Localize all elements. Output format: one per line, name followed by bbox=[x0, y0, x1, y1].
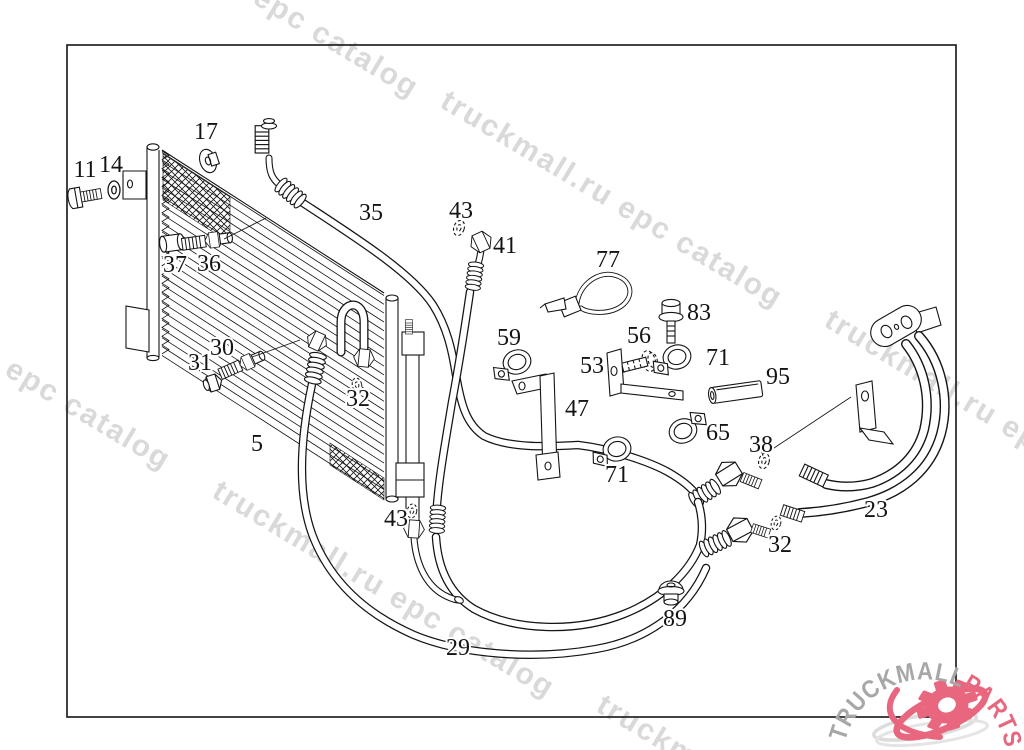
washer-14 bbox=[108, 181, 120, 199]
part-label-17: 17 bbox=[194, 119, 218, 145]
cable-tie-77 bbox=[540, 274, 630, 317]
part-label-77: 77 bbox=[596, 247, 620, 273]
radiator-bracket-lower bbox=[126, 306, 149, 352]
pipe-bracket bbox=[856, 381, 893, 444]
fitting-36 bbox=[181, 230, 233, 252]
receiver-bar bbox=[386, 295, 424, 526]
part-label-89: 89 bbox=[663, 606, 687, 632]
bolt-11 bbox=[67, 184, 103, 209]
bolt-83 bbox=[659, 299, 683, 343]
clamp-65 bbox=[665, 408, 712, 447]
part-label-36: 36 bbox=[197, 251, 221, 277]
part-label-23: 23 bbox=[864, 497, 888, 523]
part-label-5: 5 bbox=[251, 431, 263, 457]
nut-17 bbox=[197, 146, 222, 174]
part-label-71: 71 bbox=[605, 462, 629, 488]
radiator-crosshatch-bottom bbox=[330, 443, 384, 500]
pipe-flange bbox=[866, 300, 927, 351]
radiator-crosshatch-top bbox=[163, 154, 230, 243]
part-label-47: 47 bbox=[565, 396, 589, 422]
bracket-47 bbox=[512, 373, 560, 480]
part-label-43: 43 bbox=[449, 198, 473, 224]
part-label-35: 35 bbox=[359, 200, 383, 226]
pipe-assembly-23 bbox=[780, 300, 944, 522]
part-label-31: 31 bbox=[188, 350, 212, 376]
truckmall-parts-logo: TRUCKMALLPARTS bbox=[824, 657, 1024, 750]
sleeve-95 bbox=[708, 381, 763, 404]
part-label-71: 71 bbox=[706, 345, 730, 371]
part-label-83: 83 bbox=[687, 300, 711, 326]
part-label-59: 59 bbox=[497, 325, 521, 351]
part-label-30: 30 bbox=[210, 335, 234, 361]
part-label-56: 56 bbox=[627, 323, 651, 349]
part-label-53: 53 bbox=[580, 353, 604, 379]
transfer-pipe bbox=[341, 305, 375, 393]
part-label-32: 32 bbox=[768, 532, 792, 558]
parts-diagram: 1114173736354341778356537195594765383031… bbox=[0, 0, 1024, 750]
fitting-37 bbox=[159, 233, 186, 252]
radiator-bracket-upper bbox=[123, 171, 146, 199]
part-label-14: 14 bbox=[99, 152, 123, 178]
part-label-38: 38 bbox=[749, 432, 773, 458]
part-label-65: 65 bbox=[706, 420, 730, 446]
part-label-41: 41 bbox=[493, 233, 517, 259]
part-label-32: 32 bbox=[346, 386, 370, 412]
part-label-29: 29 bbox=[446, 635, 470, 661]
part-label-43: 43 bbox=[384, 506, 408, 532]
washer-32b bbox=[770, 515, 783, 531]
parts-catalog-page: truckmall.ru epc catalogtruckmall.ru epc… bbox=[0, 0, 1024, 750]
part-label-95: 95 bbox=[766, 364, 790, 390]
part-label-37: 37 bbox=[163, 252, 187, 278]
part-label-11: 11 bbox=[73, 157, 96, 183]
